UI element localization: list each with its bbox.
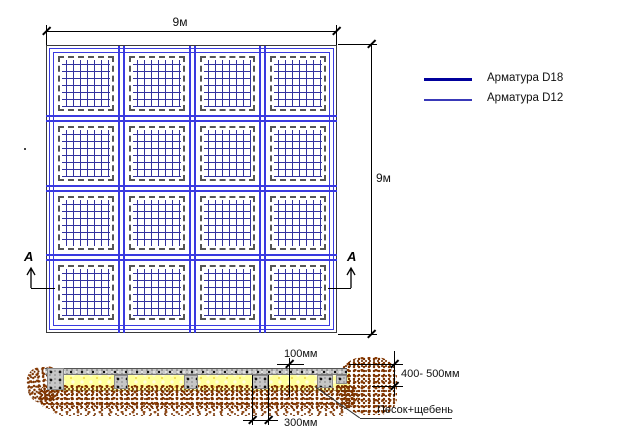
legend-line-d12-icon <box>424 99 472 101</box>
rebar-mesh-d12 <box>58 56 114 111</box>
slab-cell <box>125 261 189 324</box>
legend-label-d18: Арматура D18 <box>487 72 563 84</box>
rebar-mesh-d12 <box>270 56 326 111</box>
dim-line-depth <box>394 351 395 396</box>
slab-cell <box>266 261 330 324</box>
concrete-slab <box>45 368 347 375</box>
slab-cell <box>196 261 260 324</box>
rebar-mesh-d12 <box>200 196 256 251</box>
slab-cell <box>54 122 118 185</box>
section-cut-line-left <box>31 288 55 289</box>
concrete-rib-edge-left <box>47 368 64 390</box>
material-label: Песок+щебень <box>377 404 453 416</box>
slab-cell <box>266 192 330 255</box>
stray-dot <box>24 148 26 150</box>
plan-width-dimension: 9м <box>150 15 210 29</box>
legend-label-d12: Арматура D12 <box>487 92 563 104</box>
rib-d18-horizontal <box>46 115 337 122</box>
rebar-mesh-d12 <box>58 265 114 320</box>
rebar-mesh-d12 <box>58 126 114 181</box>
section-cut-line-right <box>328 288 351 289</box>
slab-cell <box>54 52 118 115</box>
rebar-mesh-d12 <box>129 196 185 251</box>
rebar-mesh-d12 <box>200 56 256 111</box>
slab-cell <box>125 122 189 185</box>
section-arrow-up-icon <box>24 265 38 289</box>
concrete-rib <box>114 375 128 389</box>
slab-cell <box>266 52 330 115</box>
rebar-mesh-d12 <box>200 126 256 181</box>
dim-line-100 <box>277 364 304 365</box>
dim-line-300 <box>243 420 278 421</box>
section-arrow-up-icon <box>344 265 358 289</box>
slab-cell <box>196 122 260 185</box>
foundation-drawing: 9м 9м А А Арматура D18 Арматура D12 100м… <box>0 0 640 436</box>
rib-width-dimension: 300мм <box>284 417 317 429</box>
rebar-mesh-d12 <box>129 126 185 181</box>
slab-cell <box>196 192 260 255</box>
rebar-mesh-d12 <box>200 265 256 320</box>
concrete-rib <box>317 375 333 388</box>
slab-cell <box>54 261 118 324</box>
rebar-mesh-d12 <box>270 265 326 320</box>
section-mark-left: А <box>24 249 33 264</box>
rebar-mesh-d12 <box>270 126 326 181</box>
rebar-mesh-d12 <box>58 196 114 251</box>
rib-d18-horizontal <box>46 254 337 261</box>
slab-thickness-dimension: 100мм <box>284 348 317 360</box>
concrete-rib <box>252 375 268 389</box>
rebar-mesh-d12 <box>129 56 185 111</box>
concrete-rib <box>184 375 198 389</box>
concrete-edge-step-right <box>336 375 347 384</box>
legend: Арматура D18 Арматура D12 <box>424 70 594 110</box>
dim-line-top <box>46 31 337 32</box>
leader-line-horizontal <box>360 418 452 419</box>
slab-cell <box>125 52 189 115</box>
rebar-mesh-d12 <box>129 265 185 320</box>
plan-height-dimension: 9м <box>376 171 391 185</box>
slab-cell <box>196 52 260 115</box>
dim-ext-line <box>372 386 403 387</box>
legend-line-d18-icon <box>424 78 472 81</box>
dim-line-right <box>371 43 372 335</box>
gravel-scatter <box>52 402 348 416</box>
depth-dimension: 400- 500мм <box>401 368 460 380</box>
slab-cell <box>266 122 330 185</box>
section-mark-right: А <box>347 249 356 264</box>
rebar-mesh-d12 <box>270 196 326 251</box>
slab-cell <box>125 192 189 255</box>
rib-d18-horizontal <box>46 185 337 192</box>
slab-cell <box>54 192 118 255</box>
